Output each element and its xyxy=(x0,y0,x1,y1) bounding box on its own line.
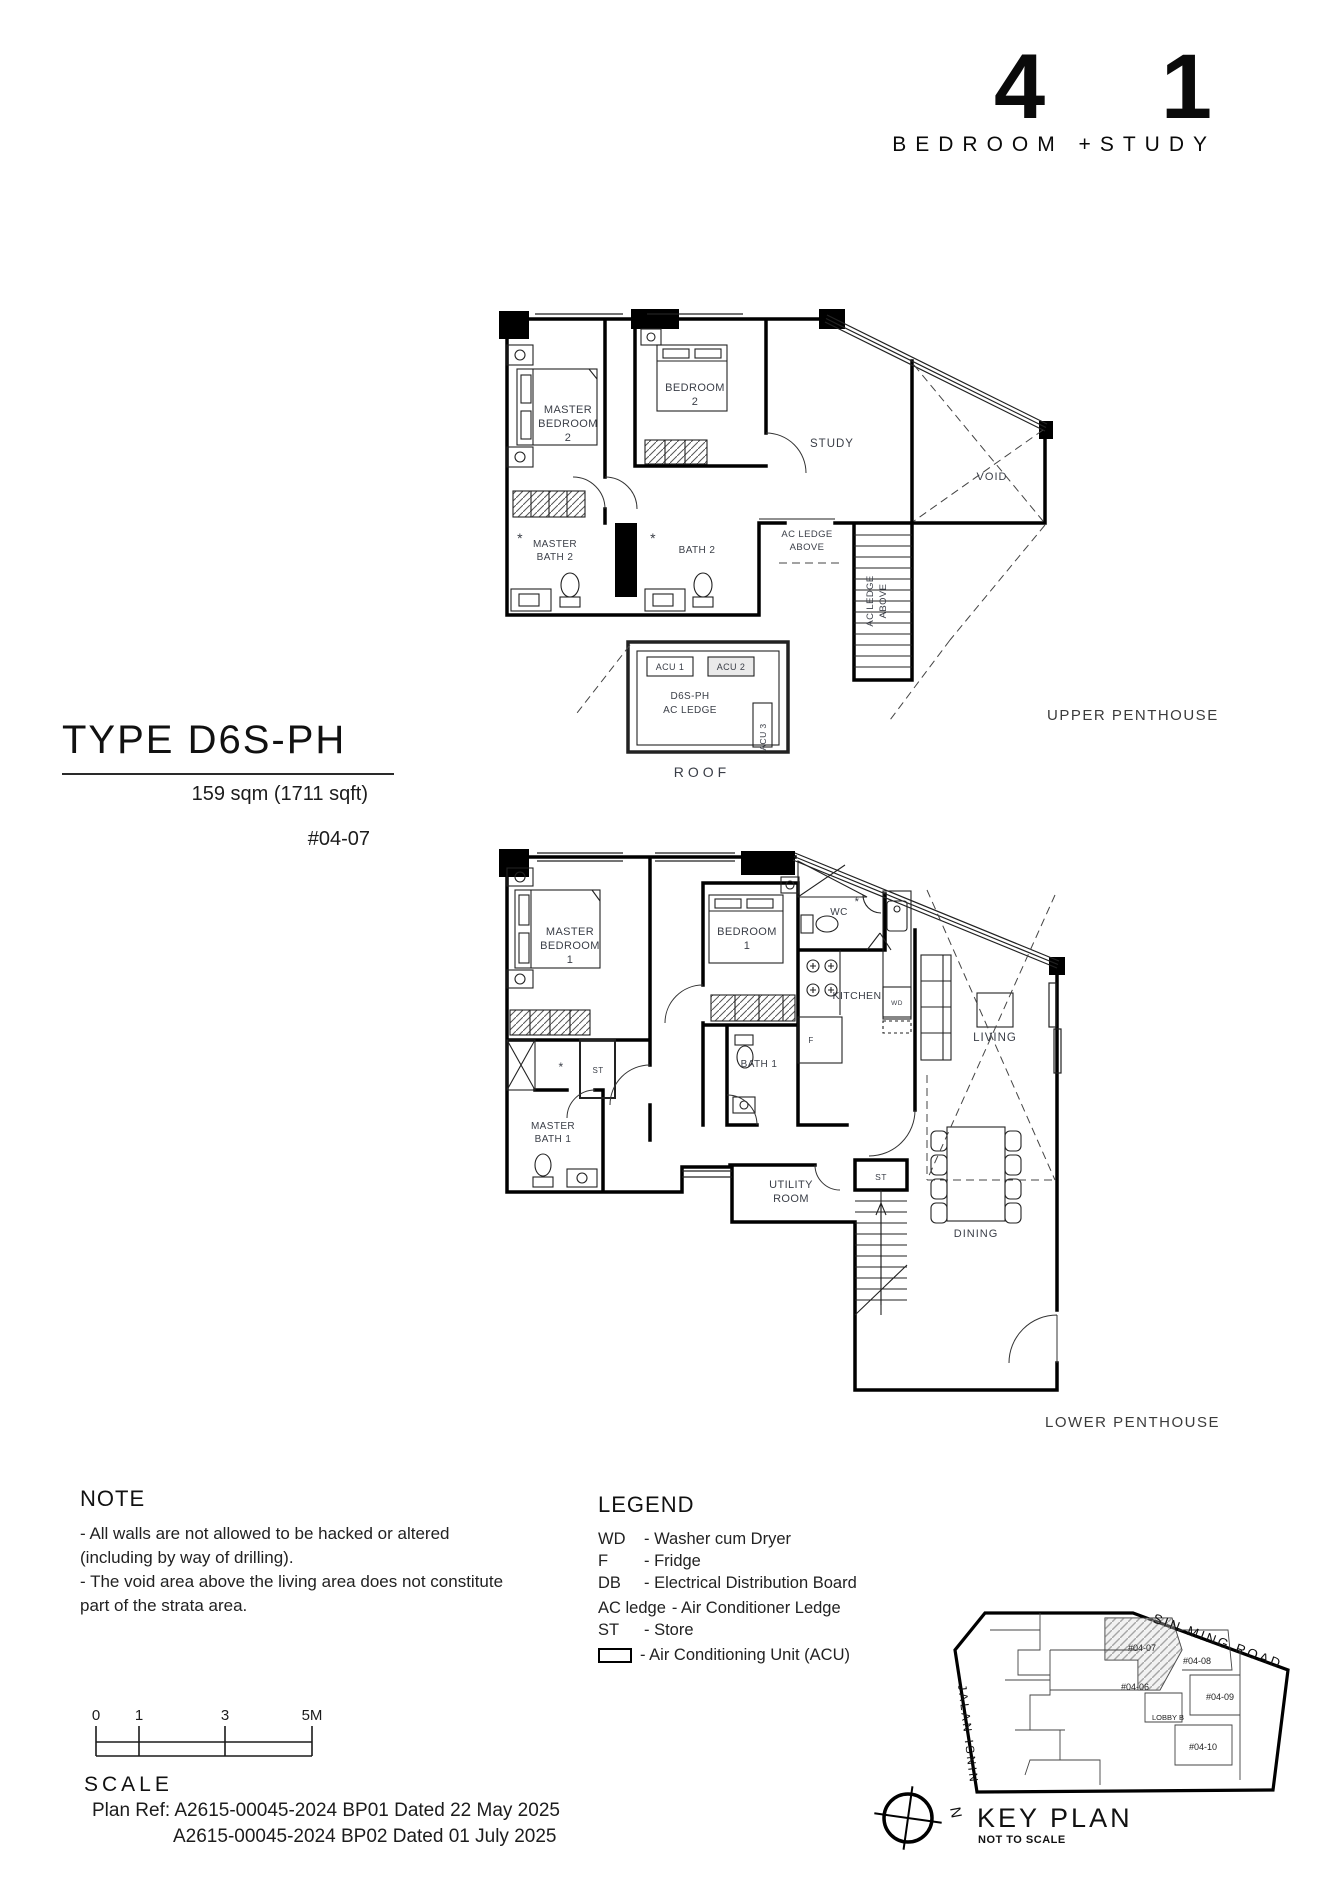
label-washer-dryer: WD xyxy=(891,1000,903,1007)
unit-label-0410: #04-10 xyxy=(1189,1742,1217,1752)
upper-windows xyxy=(535,314,1047,431)
shower-icon: * xyxy=(517,530,523,546)
svg-text:2: 2 xyxy=(692,396,699,408)
note-line: (including by way of drilling). xyxy=(80,1546,530,1570)
plan-ref-line2: A2615-00045-2024 BP02 Dated 01 July 2025 xyxy=(173,1824,560,1850)
legend-desc: - Washer cum Dryer xyxy=(644,1528,791,1550)
legend-row: WD - Washer cum Dryer xyxy=(598,1528,968,1550)
label-roof: ROOF xyxy=(674,764,730,780)
unit-label-0407: #04-07 xyxy=(1128,1643,1156,1653)
scale-tick-3: 3 xyxy=(221,1707,229,1724)
keyplan-subtitle: NOT TO SCALE xyxy=(978,1834,1066,1846)
room-label-dining: DINING xyxy=(954,1228,999,1240)
svg-text:BATH 2: BATH 2 xyxy=(537,552,574,563)
plan-ref-line1: Plan Ref: A2615-00045-2024 BP01 Dated 22… xyxy=(92,1798,560,1824)
legend-desc: - Store xyxy=(644,1619,694,1641)
svg-text:BATH 1: BATH 1 xyxy=(535,1134,572,1145)
road-label-jalan-isnin: JALAN ISNIN xyxy=(955,1684,981,1785)
scale-label: SCALE xyxy=(84,1773,354,1797)
bedroom-count: 4 1 xyxy=(994,44,1216,131)
note-line: part of the strata area. xyxy=(80,1594,530,1618)
title-number-1: 1 xyxy=(1161,44,1212,131)
room-label-bedroom-1: BEDROOM xyxy=(717,926,777,938)
shower-icon: * xyxy=(558,1060,563,1074)
acu-symbol-icon xyxy=(598,1648,632,1663)
title-number-4: 4 xyxy=(994,44,1045,131)
label-acu3: ACU 3 xyxy=(758,723,768,750)
upper-pillars xyxy=(499,309,1053,597)
label-ac-ledge-box: D6S-PH xyxy=(670,691,709,702)
shower-icon: * xyxy=(855,896,860,908)
room-label-master-bedroom-2: MASTER xyxy=(544,404,592,416)
label-store-closet: ST xyxy=(592,1066,603,1075)
scale-tick-1: 1 xyxy=(135,1707,143,1724)
svg-text:1: 1 xyxy=(567,954,574,966)
legend-abbr: F xyxy=(598,1550,644,1572)
room-label-void: VOID xyxy=(977,471,1008,483)
label-fridge: F xyxy=(808,1036,813,1045)
note-line: - The void area above the living area do… xyxy=(80,1570,530,1594)
room-label-bath-1: BATH 1 xyxy=(741,1059,778,1070)
key-plan: #04-07 #04-08 #04-06 #04-09 LOBBY B #04-… xyxy=(800,1590,1320,1880)
svg-text:2: 2 xyxy=(565,432,572,444)
svg-text:1: 1 xyxy=(744,940,751,952)
svg-text:BEDROOM: BEDROOM xyxy=(540,940,600,952)
room-label-bedroom-2: BEDROOM xyxy=(665,382,725,394)
title-subtitle: BEDROOM +STUDY xyxy=(836,133,1216,157)
room-label-living: LIVING xyxy=(973,1032,1017,1044)
svg-text:ABOVE: ABOVE xyxy=(878,584,889,619)
legend-abbr: AC ledge xyxy=(598,1597,666,1619)
upper-labels: MASTER BEDROOM 2 BEDROOM 2 STUDY VOID MA… xyxy=(517,382,1007,780)
room-label-bath-2: BATH 2 xyxy=(679,545,716,556)
scale-bar: 0 1 3 5M xyxy=(84,1706,354,1764)
plan-ref: Plan Ref: A2615-00045-2024 BP01 Dated 22… xyxy=(92,1798,560,1850)
north-label: N xyxy=(946,1806,965,1820)
label-ac-ledge-above: AC LEDGE xyxy=(781,529,832,540)
svg-text:AC LEDGE: AC LEDGE xyxy=(663,705,717,716)
legend-heading: LEGEND xyxy=(598,1492,968,1518)
svg-text:ABOVE: ABOVE xyxy=(790,542,825,553)
shower-icon: * xyxy=(650,530,656,546)
lower-caption: LOWER PENTHOUSE xyxy=(1045,1414,1220,1431)
lower-penthouse-plan: MASTER BEDROOM 1 BEDROOM 1 WC KITCHEN F … xyxy=(495,835,1095,1395)
label-ac-ledge-above-rotated: AC LEDGE xyxy=(865,575,876,626)
label-store: ST xyxy=(875,1172,887,1182)
unit-type-label: TYPE D6S-PH xyxy=(62,718,394,775)
north-arrow-icon: N xyxy=(870,1782,965,1855)
legend-row: F - Fridge xyxy=(598,1550,968,1572)
note-line: - All walls are not allowed to be hacked… xyxy=(80,1522,530,1546)
room-label-master-bath-2: MASTER xyxy=(533,539,577,550)
note-section: NOTE - All walls are not allowed to be h… xyxy=(80,1486,530,1618)
legend-desc: - Fridge xyxy=(644,1550,701,1572)
room-label-utility: UTILITY xyxy=(769,1179,813,1191)
room-label-wc: WC xyxy=(830,907,847,918)
scale-section: 0 1 3 5M SCALE xyxy=(84,1706,354,1797)
note-heading: NOTE xyxy=(80,1486,530,1512)
page-title: 4 1 BEDROOM +STUDY xyxy=(836,44,1216,157)
legend-abbr: WD xyxy=(598,1528,644,1550)
room-label-master-bath-1: MASTER xyxy=(531,1121,575,1132)
lower-pillars xyxy=(499,849,1065,975)
svg-text:BEDROOM: BEDROOM xyxy=(538,418,598,430)
unit-label-0406: #04-06 xyxy=(1121,1682,1149,1692)
unit-number: #04-07 xyxy=(62,828,394,851)
upper-walls xyxy=(507,319,1045,680)
room-label-study: STUDY xyxy=(810,438,854,450)
upper-caption: UPPER PENTHOUSE xyxy=(1047,707,1219,724)
upper-penthouse-plan: MASTER BEDROOM 2 BEDROOM 2 STUDY VOID MA… xyxy=(495,295,1095,795)
room-label-master-bedroom-1: MASTER xyxy=(546,926,594,938)
legend-abbr: ST xyxy=(598,1619,644,1641)
room-label-kitchen: KITCHEN xyxy=(833,990,882,1002)
unit-label-0408: #04-08 xyxy=(1183,1656,1211,1666)
floorplan-page: 4 1 BEDROOM +STUDY TYPE D6S-PH 159 sqm (… xyxy=(0,0,1328,1880)
svg-text:ROOM: ROOM xyxy=(773,1193,809,1205)
unit-info: TYPE D6S-PH 159 sqm (1711 sqft) #04-07 xyxy=(62,718,394,851)
unit-label-0409: #04-09 xyxy=(1206,1692,1234,1702)
unit-area: 159 sqm (1711 sqft) xyxy=(62,783,394,806)
unit-label-lobby-b: LOBBY B xyxy=(1152,1713,1184,1722)
legend-abbr: DB xyxy=(598,1572,644,1594)
scale-tick-0: 0 xyxy=(92,1707,100,1724)
label-acu2: ACU 2 xyxy=(717,662,746,672)
label-acu1: ACU 1 xyxy=(656,662,685,672)
keyplan-title: KEY PLAN xyxy=(977,1803,1133,1833)
scale-tick-5m: 5M xyxy=(302,1707,323,1724)
